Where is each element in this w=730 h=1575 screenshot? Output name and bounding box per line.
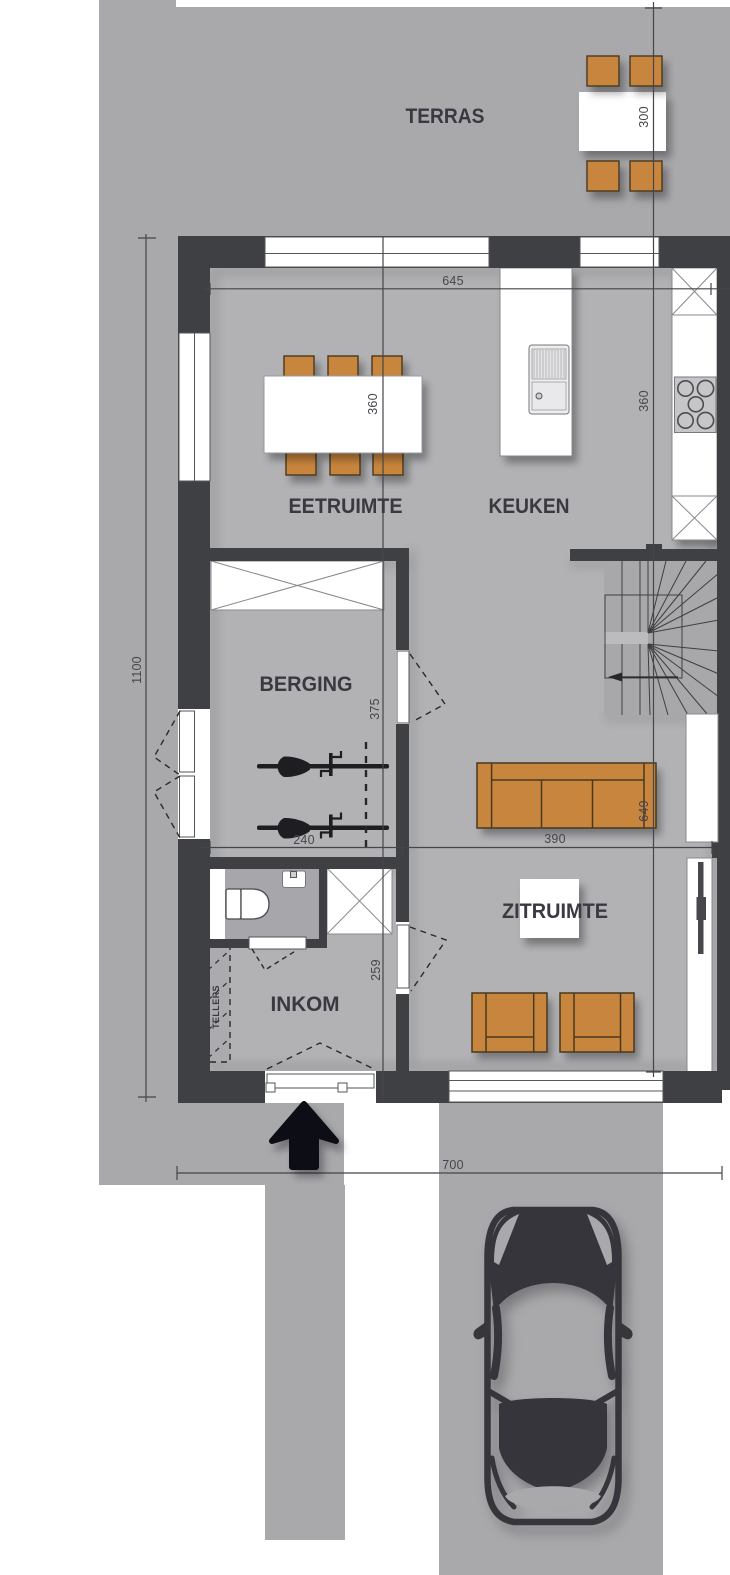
svg-text:EETRUIMTE: EETRUIMTE: [289, 494, 403, 518]
svg-text:INKOM: INKOM: [271, 992, 340, 1016]
svg-text:1100: 1100: [130, 656, 144, 684]
svg-text:ZITRUIMTE: ZITRUIMTE: [502, 899, 608, 923]
svg-text:390: 390: [544, 832, 565, 846]
svg-text:259: 259: [369, 959, 383, 980]
svg-text:TERRAS: TERRAS: [406, 104, 485, 128]
svg-text:KEUKEN: KEUKEN: [489, 494, 570, 518]
svg-text:360: 360: [637, 390, 651, 411]
svg-text:360: 360: [366, 393, 380, 414]
svg-text:700: 700: [442, 1158, 463, 1172]
svg-text:240: 240: [293, 833, 314, 847]
svg-text:645: 645: [442, 274, 463, 288]
svg-text:375: 375: [368, 698, 382, 719]
svg-text:649: 649: [637, 800, 651, 821]
svg-text:300: 300: [637, 106, 651, 127]
svg-text:TELLERS: TELLERS: [211, 985, 221, 1029]
svg-text:BERGING: BERGING: [260, 672, 353, 696]
